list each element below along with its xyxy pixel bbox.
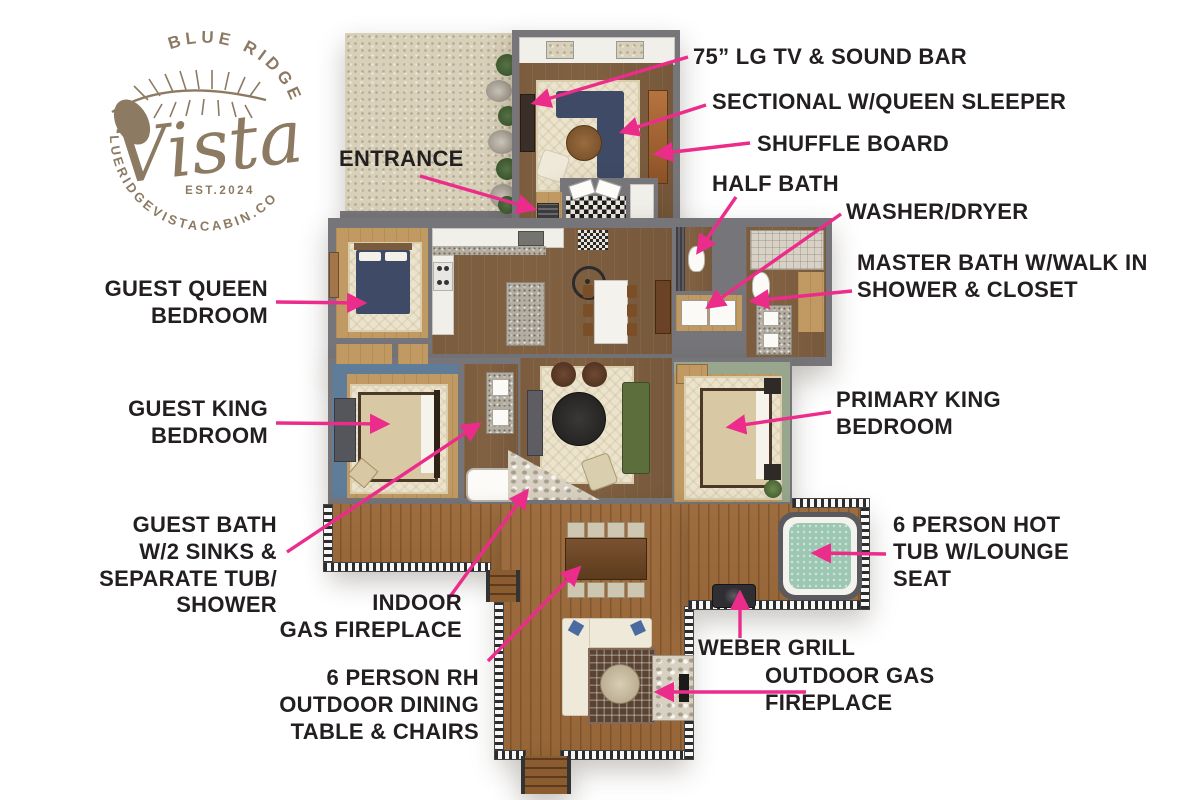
label-guest-king: GUEST KING BEDROOM (128, 396, 268, 450)
label-weber-grill: WEBER GRILL (698, 635, 855, 662)
arrow-outdoor-dining (488, 568, 579, 661)
arrow-guest-king (276, 423, 387, 424)
arrow-primary-king (729, 412, 831, 427)
arrow-master-bath (752, 291, 852, 301)
label-indoor-fireplace: INDOOR GAS FIREPLACE (280, 590, 462, 644)
label-master-bath: MASTER BATH W/WALK IN SHOWER & CLOSET (857, 250, 1148, 304)
label-entrance: ENTRANCE (339, 146, 464, 173)
arrow-hot-tub (814, 553, 886, 554)
arrow-half-bath (698, 197, 736, 252)
label-primary-king: PRIMARY KING BEDROOM (836, 387, 1001, 441)
arrow-guest-bath (287, 424, 479, 552)
floor-plan-page: BLUE RIDGE Vista EST.2024 BLUERIDGEVISTA… (0, 0, 1200, 800)
label-washer-dryer: WASHER/DRYER (846, 199, 1028, 226)
arrow-guest-queen (276, 302, 364, 303)
arrow-tv (534, 57, 688, 103)
arrow-sectional (622, 105, 706, 132)
label-hot-tub: 6 PERSON HOT TUB W/LOUNGE SEAT (893, 512, 1069, 592)
label-guest-queen: GUEST QUEEN BEDROOM (105, 276, 268, 330)
label-sectional: SECTIONAL W/QUEEN SLEEPER (712, 89, 1066, 116)
label-half-bath: HALF BATH (712, 171, 839, 198)
label-outdoor-fireplace: OUTDOOR GAS FIREPLACE (765, 663, 935, 717)
arrow-entrance (420, 176, 534, 209)
label-shuffleboard: SHUFFLE BOARD (757, 131, 949, 158)
arrow-shuffleboard (656, 143, 750, 154)
arrow-indoor-fireplace (449, 491, 527, 598)
label-outdoor-dining: 6 PERSON RH OUTDOOR DINING TABLE & CHAIR… (279, 665, 479, 745)
label-tv: 75” LG TV & SOUND BAR (693, 44, 967, 71)
label-guest-bath: GUEST BATH W/2 SINKS & SEPARATE TUB/ SHO… (99, 512, 277, 619)
